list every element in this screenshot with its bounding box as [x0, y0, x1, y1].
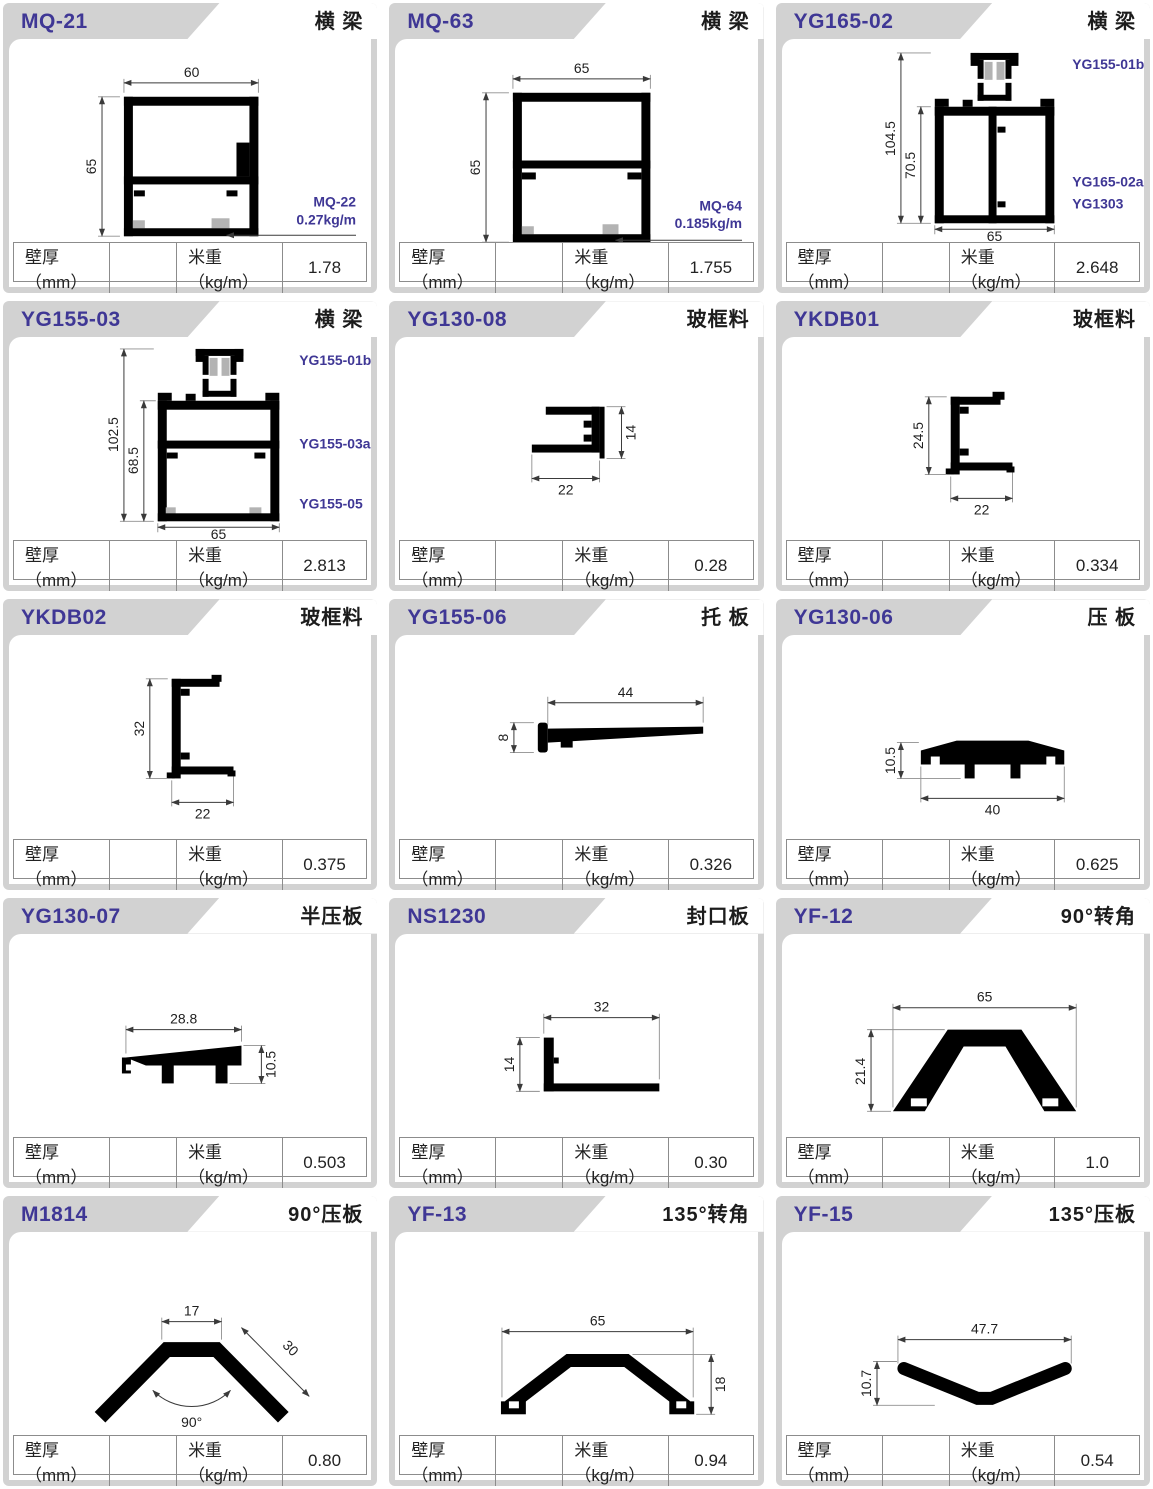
profile-card: MQ-63 横 梁 65 — [389, 3, 763, 293]
card-header: YG130-06 压 板 — [776, 599, 1150, 635]
wall-thickness-label: 壁厚（mm） — [14, 1436, 109, 1486]
catalog-grid: MQ-21 横 梁 60 — [0, 0, 1153, 1489]
profile-code: YG165-02 — [794, 3, 894, 40]
card-header: YF-15 135°压板 — [776, 1196, 1150, 1232]
meter-weight-label: 米重（kg/m） — [562, 243, 668, 293]
dim-width: 32 — [594, 998, 610, 1014]
spec-table: 壁厚（mm） 米重（kg/m） 0.326 — [399, 839, 753, 879]
wall-thickness-value — [495, 541, 562, 591]
meter-weight-label: 米重（kg/m） — [562, 541, 668, 591]
profile-drawing: 60 65 MQ-22 0.27kg/m — [9, 39, 371, 242]
wall-thickness-value — [882, 1138, 949, 1188]
profile-card: YF-13 135°转角 65 18 — [389, 1196, 763, 1486]
wall-thickness-label: 壁厚（mm） — [400, 1138, 495, 1188]
sub-profile-code: MQ-64 — [700, 197, 743, 213]
wall-thickness-label: 壁厚（mm） — [14, 541, 109, 591]
spec-table: 壁厚（mm） 米重（kg/m） 0.334 — [786, 540, 1140, 580]
dim-width: 22 — [973, 501, 989, 517]
profile-drawing: 47.7 10.7 — [782, 1232, 1144, 1435]
dim-width: 40 — [984, 802, 1000, 818]
profile-card: YKDB01 玻框料 24.5 — [776, 301, 1150, 591]
wall-thickness-label: 壁厚（mm） — [400, 840, 495, 890]
meter-weight-label: 米重（kg/m） — [562, 1138, 668, 1188]
profile-drawing: 10.5 40 — [782, 635, 1144, 838]
meter-weight-value: 0.54 — [1054, 1436, 1139, 1486]
wall-thickness-label: 壁厚（mm） — [787, 541, 882, 591]
profile-code: YG130-08 — [407, 301, 507, 338]
profile-code: YF-12 — [794, 898, 854, 935]
card-header: M1814 90°压板 — [3, 1196, 377, 1232]
wall-thickness-value — [495, 1436, 562, 1486]
card-body: 44 8 壁厚（mm） 米重（kg/m） 0.326 — [395, 635, 757, 883]
dim-height: 14 — [501, 1056, 517, 1072]
wall-thickness-label: 壁厚（mm） — [400, 541, 495, 591]
profile-code: YKDB02 — [21, 599, 107, 636]
profile-card: YG155-06 托 板 44 8 壁厚（mm） — [389, 599, 763, 889]
wall-thickness-label: 壁厚（mm） — [14, 840, 109, 890]
meter-weight-label: 米重（kg/m） — [176, 840, 282, 890]
dim-width: 65 — [211, 526, 227, 540]
dim-inner-height: 70.5 — [902, 152, 918, 179]
profile-drawing: 24.5 22 — [782, 337, 1144, 540]
dim-width: 65 — [590, 1312, 606, 1328]
dim-width: 22 — [558, 482, 574, 498]
card-header: YF-13 135°转角 — [389, 1196, 763, 1232]
wall-thickness-label: 壁厚（mm） — [787, 1436, 882, 1486]
sub-profile-weight: 0.27kg/m — [296, 211, 356, 227]
meter-weight-label: 米重（kg/m） — [949, 541, 1055, 591]
spec-table: 壁厚（mm） 米重（kg/m） 0.28 — [399, 540, 753, 580]
spec-table: 壁厚（mm） 米重（kg/m） 0.503 — [13, 1137, 367, 1177]
profile-code: YF-15 — [794, 1196, 854, 1233]
related-profile-label: YG155-01b — [299, 352, 371, 368]
wall-thickness-value — [495, 1138, 562, 1188]
card-body: 17 30 90° 壁厚（mm） 米重（kg/m） 0.80 — [9, 1232, 371, 1480]
card-body: 32 14 壁厚（mm） 米重（kg/m） 0.30 — [395, 934, 757, 1182]
meter-weight-value: 0.625 — [1054, 840, 1139, 890]
profile-card: YKDB02 玻框料 32 — [3, 599, 377, 889]
profile-code: YG130-07 — [21, 898, 121, 935]
card-body: 65 21.4 壁厚（mm） 米重（kg/m） 1.0 — [782, 934, 1144, 1182]
dim-width: 60 — [184, 64, 200, 80]
profile-code: MQ-63 — [407, 3, 474, 40]
card-header: YG155-06 托 板 — [389, 599, 763, 635]
meter-weight-label: 米重（kg/m） — [176, 541, 282, 591]
spec-table: 壁厚（mm） 米重（kg/m） 2.648 — [786, 242, 1140, 282]
profile-category: 半压板 — [300, 898, 363, 936]
dim-height: 18 — [712, 1376, 728, 1392]
spec-table: 壁厚（mm） 米重（kg/m） 0.54 — [786, 1435, 1140, 1475]
profile-card: YF-15 135°压板 47.7 10.7 壁厚（mm） 米重（k — [776, 1196, 1150, 1486]
card-header: NS1230 封口板 — [389, 898, 763, 934]
profile-category: 玻框料 — [687, 301, 750, 339]
meter-weight-value: 0.326 — [668, 840, 753, 890]
profile-drawing: 65 21.4 — [782, 934, 1144, 1137]
dim-height: 8 — [495, 734, 511, 742]
profile-code: MQ-21 — [21, 3, 88, 40]
meter-weight-value: 0.503 — [282, 1138, 367, 1188]
related-profile-label: YG155-05 — [299, 496, 363, 512]
meter-weight-value: 0.80 — [282, 1436, 367, 1486]
spec-table: 壁厚（mm） 米重（kg/m） 0.625 — [786, 839, 1140, 879]
profile-category: 玻框料 — [1073, 301, 1136, 339]
meter-weight-label: 米重（kg/m） — [176, 243, 282, 293]
related-profile-label: YG155-01b — [1072, 56, 1144, 72]
dim-side-length: 30 — [280, 1337, 302, 1359]
wall-thickness-label: 壁厚（mm） — [14, 1138, 109, 1188]
profile-code: YF-13 — [407, 1196, 467, 1233]
card-header: MQ-63 横 梁 — [389, 3, 763, 39]
profile-category: 托 板 — [701, 599, 750, 637]
profile-card: YG130-06 压 板 10.5 40 — [776, 599, 1150, 889]
profile-category: 90°压板 — [288, 1196, 363, 1234]
profile-code: YG130-06 — [794, 599, 894, 636]
related-profile-label: YG155-03a — [299, 436, 371, 452]
meter-weight-label: 米重（kg/m） — [562, 840, 668, 890]
meter-weight-value: 0.28 — [668, 541, 753, 591]
meter-weight-label: 米重（kg/m） — [949, 840, 1055, 890]
card-header: MQ-21 横 梁 — [3, 3, 377, 39]
spec-table: 壁厚（mm） 米重（kg/m） 0.30 — [399, 1137, 753, 1177]
profile-code: YG155-06 — [407, 599, 507, 636]
dim-height: 21.4 — [852, 1057, 868, 1084]
dim-width: 47.7 — [971, 1320, 998, 1336]
profile-category: 横 梁 — [701, 3, 750, 41]
profile-card: MQ-21 横 梁 60 — [3, 3, 377, 293]
wall-thickness-value — [882, 840, 949, 890]
spec-table: 壁厚（mm） 米重（kg/m） 1.755 — [399, 242, 753, 282]
spec-table: 壁厚（mm） 米重（kg/m） 0.94 — [399, 1435, 753, 1475]
related-profile-label: YG1303 — [1072, 195, 1123, 211]
card-body: 60 65 MQ-22 0.27kg/m 壁厚（mm） 米重（kg/m） 1.7… — [9, 39, 371, 287]
profile-code: NS1230 — [407, 898, 486, 935]
spec-table: 壁厚（mm） 米重（kg/m） 0.80 — [13, 1435, 367, 1475]
profile-card: YG130-07 半压板 28.8 10.5 — [3, 898, 377, 1188]
meter-weight-label: 米重（kg/m） — [949, 1138, 1055, 1188]
meter-weight-value: 0.30 — [668, 1138, 753, 1188]
profile-drawing: 104.5 70.5 65 YG155-01b YG165-02a YG1303 — [782, 39, 1144, 242]
wall-thickness-label: 壁厚（mm） — [787, 1138, 882, 1188]
meter-weight-value: 2.813 — [282, 541, 367, 591]
meter-weight-value: 1.755 — [668, 243, 753, 293]
card-body: 10.5 40 壁厚（mm） 米重（kg/m） 0.625 — [782, 635, 1144, 883]
wall-thickness-value — [109, 243, 176, 293]
card-body: 24.5 22 壁厚（mm） 米重（kg/m） 0.334 — [782, 337, 1144, 585]
wall-thickness-label: 壁厚（mm） — [787, 840, 882, 890]
profile-card: YG165-02 横 梁 — [776, 3, 1150, 293]
related-profile-label: YG165-02a — [1072, 173, 1144, 189]
wall-thickness-label: 壁厚（mm） — [14, 243, 109, 293]
meter-weight-label: 米重（kg/m） — [176, 1138, 282, 1188]
card-body: 32 22 壁厚（mm） 米重（kg/m） 0.375 — [9, 635, 371, 883]
profile-code: M1814 — [21, 1196, 88, 1233]
wall-thickness-value — [882, 1436, 949, 1486]
dim-height: 10.5 — [882, 747, 898, 774]
profile-category: 横 梁 — [315, 3, 364, 41]
profile-category: 封口板 — [687, 898, 750, 936]
profile-code: YG155-03 — [21, 301, 121, 338]
meter-weight-value: 0.334 — [1054, 541, 1139, 591]
wall-thickness-value — [109, 1436, 176, 1486]
dim-height: 32 — [131, 721, 147, 737]
wall-thickness-value — [882, 541, 949, 591]
card-header: YG155-03 横 梁 — [3, 301, 377, 337]
profile-drawing: 28.8 10.5 — [9, 934, 371, 1137]
meter-weight-label: 米重（kg/m） — [562, 1436, 668, 1486]
card-body: 104.5 70.5 65 YG155-01b YG165-02a YG1303… — [782, 39, 1144, 287]
card-body: 28.8 10.5 壁厚（mm） 米重（kg/m） 0.503 — [9, 934, 371, 1182]
dim-height: 10.7 — [858, 1369, 874, 1396]
wall-thickness-value — [109, 840, 176, 890]
spec-table: 壁厚（mm） 米重（kg/m） 2.813 — [13, 540, 367, 580]
meter-weight-value: 0.375 — [282, 840, 367, 890]
profile-category: 玻框料 — [300, 599, 363, 637]
dim-width: 22 — [195, 806, 211, 822]
wall-thickness-value — [109, 541, 176, 591]
profile-category: 135°转角 — [662, 1196, 749, 1234]
spec-table: 壁厚（mm） 米重（kg/m） 1.78 — [13, 242, 367, 282]
dim-inner-height: 68.5 — [125, 447, 141, 474]
meter-weight-value: 2.648 — [1054, 243, 1139, 293]
sub-profile-weight: 0.185kg/m — [675, 215, 742, 231]
profile-category: 135°压板 — [1049, 1196, 1136, 1234]
card-header: YF-12 90°转角 — [776, 898, 1150, 934]
profile-drawing: 14 22 — [395, 337, 757, 540]
sub-profile-code: MQ-22 — [313, 193, 356, 209]
profile-drawing: 102.5 68.5 65 YG155-01b YG155-03a YG155-… — [9, 337, 371, 540]
dim-top-width: 17 — [184, 1302, 200, 1318]
profile-drawing: 17 30 90° — [9, 1232, 371, 1435]
dim-height: 65 — [467, 159, 483, 175]
card-body: 102.5 68.5 65 YG155-01b YG155-03a YG155-… — [9, 337, 371, 585]
dim-width: 65 — [574, 60, 590, 76]
profile-category: 横 梁 — [1087, 3, 1136, 41]
profile-drawing: 32 14 — [395, 934, 757, 1137]
profile-card: YG155-03 横 梁 — [3, 301, 377, 591]
profile-drawing: 32 22 — [9, 635, 371, 838]
dim-total-height: 102.5 — [105, 417, 121, 452]
wall-thickness-value — [882, 243, 949, 293]
meter-weight-label: 米重（kg/m） — [949, 243, 1055, 293]
card-header: YG130-07 半压板 — [3, 898, 377, 934]
card-header: YG165-02 横 梁 — [776, 3, 1150, 39]
profile-category: 压 板 — [1087, 599, 1136, 637]
card-body: 65 65 MQ-64 0.185kg/m 壁厚（mm） 米重（kg/m） 1.… — [395, 39, 757, 287]
card-body: 14 22 壁厚（mm） 米重（kg/m） 0.28 — [395, 337, 757, 585]
meter-weight-value: 1.78 — [282, 243, 367, 293]
profile-category: 横 梁 — [315, 301, 364, 339]
dim-height: 10.5 — [262, 1050, 278, 1077]
wall-thickness-value — [495, 840, 562, 890]
spec-table: 壁厚（mm） 米重（kg/m） 0.375 — [13, 839, 367, 879]
dim-width: 28.8 — [170, 1010, 197, 1026]
wall-thickness-value — [495, 243, 562, 293]
profile-card: YG130-08 玻框料 14 22 — [389, 301, 763, 591]
card-header: YKDB02 玻框料 — [3, 599, 377, 635]
profile-card: YF-12 90°转角 65 21.4 壁厚（mm） — [776, 898, 1150, 1188]
profile-drawing: 65 18 — [395, 1232, 757, 1435]
wall-thickness-label: 壁厚（mm） — [787, 243, 882, 293]
dim-width: 44 — [618, 684, 634, 700]
dim-height: 24.5 — [909, 422, 925, 449]
dim-height: 14 — [623, 425, 639, 441]
meter-weight-value: 1.0 — [1054, 1138, 1139, 1188]
profile-card: M1814 90°压板 17 30 90° 壁厚（mm） — [3, 1196, 377, 1486]
spec-table: 壁厚（mm） 米重（kg/m） 1.0 — [786, 1137, 1140, 1177]
dim-height: 65 — [83, 158, 99, 174]
profile-code: YKDB01 — [794, 301, 880, 338]
profile-drawing: 65 65 MQ-64 0.185kg/m — [395, 39, 757, 242]
dim-total-height: 104.5 — [882, 121, 898, 156]
card-header: YKDB01 玻框料 — [776, 301, 1150, 337]
profile-category: 90°转角 — [1061, 898, 1136, 936]
profile-drawing: 44 8 — [395, 635, 757, 838]
dim-width: 65 — [976, 988, 992, 1004]
dim-angle: 90° — [181, 1414, 202, 1430]
card-body: 65 18 壁厚（mm） 米重（kg/m） 0.94 — [395, 1232, 757, 1480]
profile-card: NS1230 封口板 32 14 壁厚（mm） — [389, 898, 763, 1188]
wall-thickness-label: 壁厚（mm） — [400, 1436, 495, 1486]
dim-width: 65 — [986, 228, 1002, 242]
meter-weight-label: 米重（kg/m） — [176, 1436, 282, 1486]
meter-weight-value: 0.94 — [668, 1436, 753, 1486]
card-header: YG130-08 玻框料 — [389, 301, 763, 337]
meter-weight-label: 米重（kg/m） — [949, 1436, 1055, 1486]
wall-thickness-value — [109, 1138, 176, 1188]
wall-thickness-label: 壁厚（mm） — [400, 243, 495, 293]
card-body: 47.7 10.7 壁厚（mm） 米重（kg/m） 0.54 — [782, 1232, 1144, 1480]
